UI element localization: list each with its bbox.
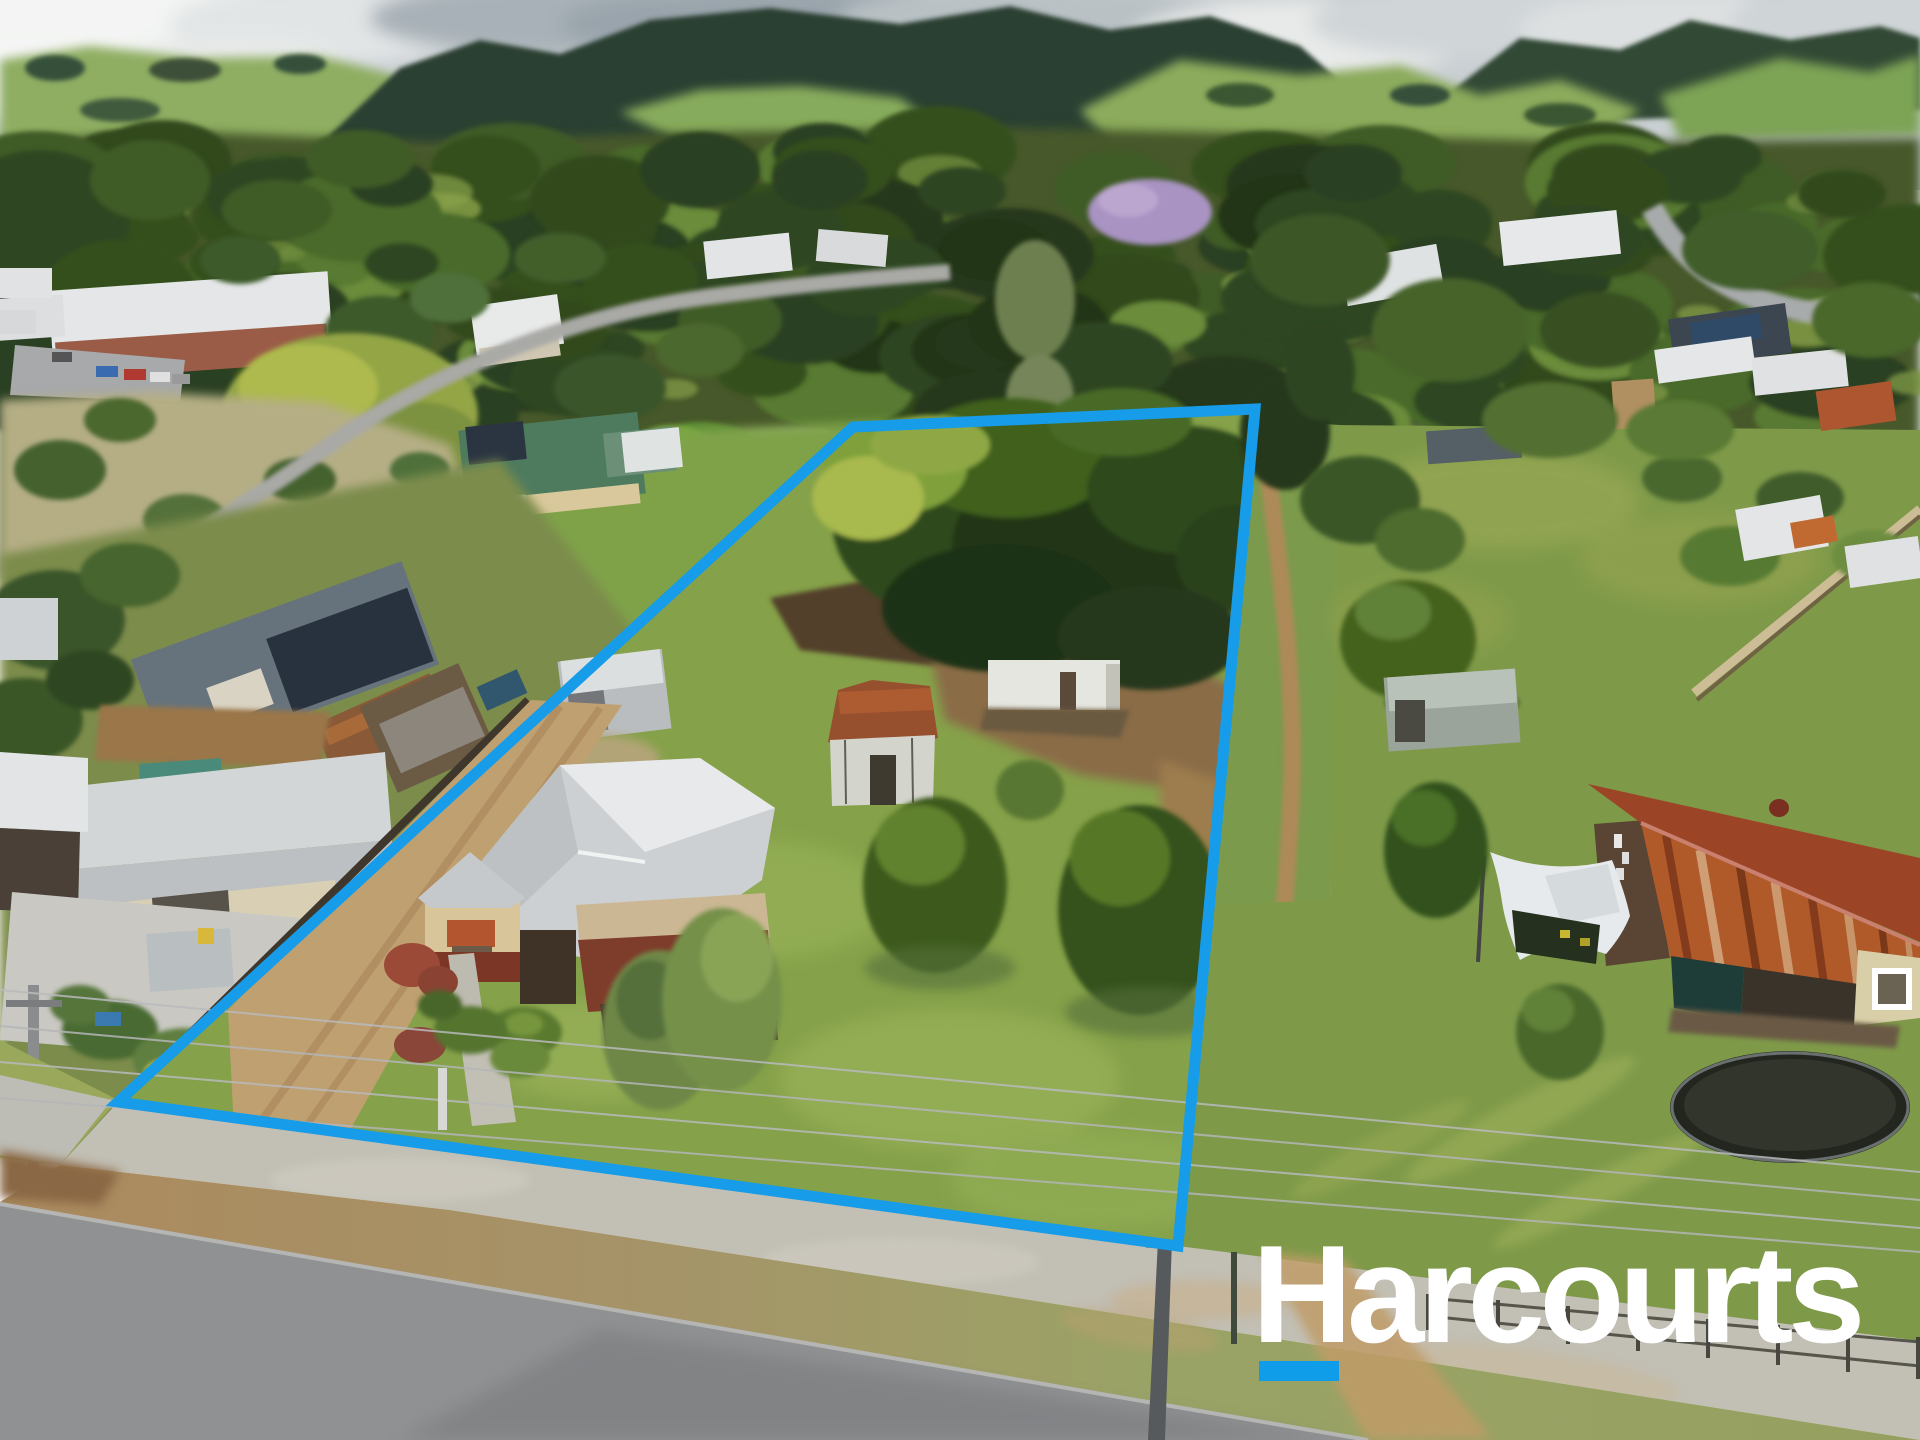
svg-text:Harcourts: Harcourts bbox=[1252, 1217, 1860, 1372]
